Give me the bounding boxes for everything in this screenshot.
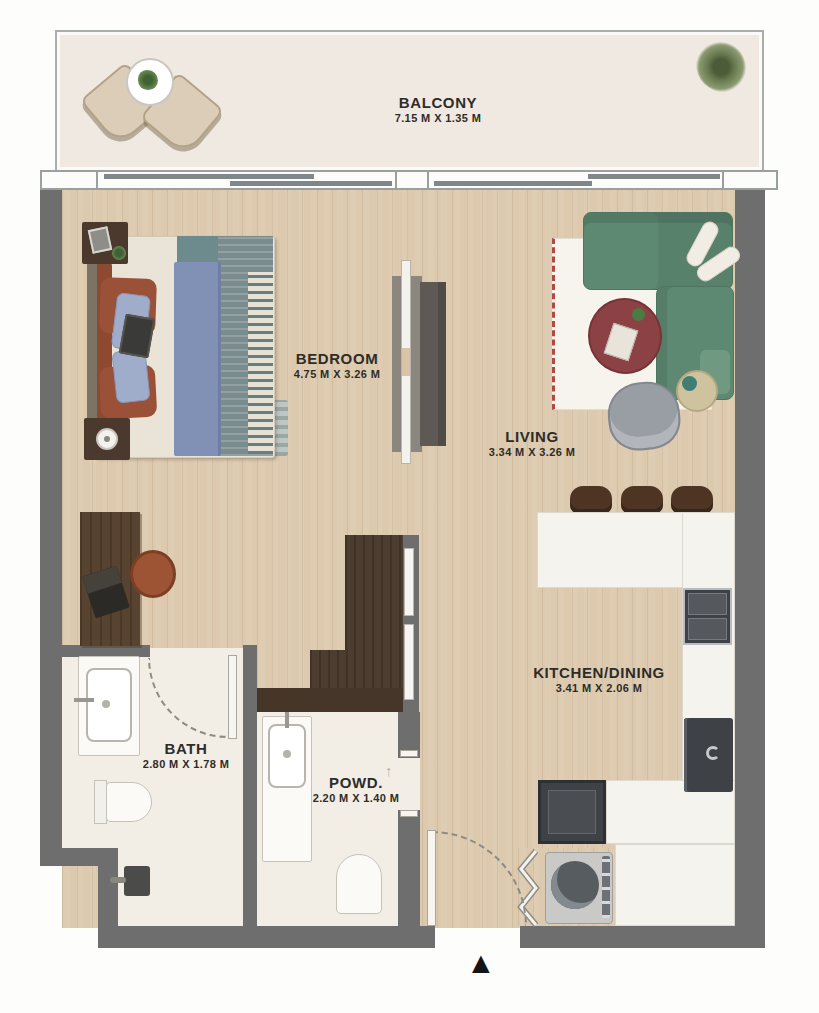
tv-panel-icon bbox=[420, 282, 446, 446]
wall-bottom-left bbox=[118, 926, 435, 948]
room-dims: 4.75 M X 3.26 M bbox=[294, 368, 381, 380]
room-dims: 2.80 M X 1.78 M bbox=[143, 758, 230, 770]
bed-runner-blue bbox=[174, 262, 221, 456]
wall-bath-powder bbox=[243, 645, 257, 926]
powder-door-opening bbox=[398, 758, 420, 810]
nightstand-plant-icon bbox=[112, 246, 126, 260]
room-dims: 3.34 M X 3.26 M bbox=[489, 446, 576, 458]
wall-left bbox=[40, 190, 62, 848]
wardrobe-icon bbox=[345, 535, 403, 712]
shower-control-icon bbox=[124, 866, 150, 896]
room-name: KITCHEN/DINING bbox=[533, 664, 665, 681]
sliding-panel-icon bbox=[434, 181, 592, 186]
closet-sliding-door-icon bbox=[404, 624, 414, 700]
sliding-panel-icon bbox=[230, 181, 392, 186]
bedroom-label: BEDROOM 4.75 M X 3.26 M bbox=[294, 350, 381, 380]
toilet-icon bbox=[106, 782, 152, 822]
entrance-marker-icon: ▲ bbox=[466, 948, 496, 978]
dining-stool-icon bbox=[671, 486, 713, 514]
bath-faucet-icon bbox=[74, 698, 94, 702]
floor-plan: BALCONY 7.15 M X 1.35 M ← → ↑ bbox=[0, 0, 819, 1013]
room-name: POWD. bbox=[313, 774, 400, 791]
room-name: BEDROOM bbox=[294, 350, 381, 367]
powder-drain-icon bbox=[283, 750, 291, 758]
living-label: LIVING 3.34 M X 3.26 M bbox=[489, 428, 576, 458]
entry-door-leaf-icon bbox=[427, 830, 436, 926]
shower-handle-icon bbox=[110, 877, 126, 883]
wall-bottom-right bbox=[520, 926, 735, 948]
room-dims: 3.41 M X 2.06 M bbox=[533, 682, 665, 694]
bath-drain-icon bbox=[102, 700, 110, 708]
cooktop-burner-icon bbox=[688, 618, 727, 640]
dining-stool-icon bbox=[621, 486, 663, 514]
washer-drum-icon bbox=[551, 861, 599, 909]
kitchen-sink-bowl-icon bbox=[548, 790, 596, 834]
wall-right bbox=[735, 190, 765, 948]
kitchen-cabinet bbox=[615, 844, 735, 926]
door-jamb bbox=[400, 810, 418, 817]
room-dims: 2.20 M X 1.40 M bbox=[313, 792, 400, 804]
cooktop-burner-icon bbox=[688, 593, 727, 615]
room-name: BALCONY bbox=[395, 94, 482, 111]
wardrobe-icon bbox=[257, 688, 403, 712]
window-corner-left bbox=[40, 170, 98, 190]
washer-panel-icon bbox=[602, 856, 610, 918]
powder-label: POWD. 2.20 M X 1.40 M bbox=[313, 774, 400, 804]
bath-door-leaf-icon bbox=[228, 655, 237, 739]
desk-chair-icon bbox=[130, 550, 176, 598]
sliding-panel-icon bbox=[104, 174, 314, 179]
lamp-icon-center bbox=[104, 436, 110, 442]
room-dims: 7.15 M X 1.35 M bbox=[395, 112, 482, 124]
window-mullion bbox=[395, 170, 429, 190]
coffee-table-plant-icon bbox=[632, 308, 645, 321]
table-plant-icon bbox=[138, 70, 158, 90]
balcony-label: BALCONY 7.15 M X 1.35 M bbox=[395, 94, 482, 124]
powder-faucet-icon bbox=[285, 712, 289, 728]
closet-sliding-door-icon bbox=[404, 548, 414, 616]
kitchen-label: KITCHEN/DINING 3.41 M X 2.06 M bbox=[533, 664, 665, 694]
room-name: BATH bbox=[143, 740, 230, 757]
wall-step-a bbox=[40, 848, 118, 866]
powder-toilet-icon bbox=[336, 854, 382, 914]
side-table-icon bbox=[676, 370, 718, 412]
window-corner-right bbox=[722, 170, 778, 190]
tv-icon-mid bbox=[402, 348, 410, 376]
sliding-panel-icon bbox=[588, 174, 720, 179]
door-jamb bbox=[400, 750, 418, 757]
side-table-plant-icon bbox=[682, 376, 697, 391]
room-name: LIVING bbox=[489, 428, 576, 445]
wall-powder-right bbox=[398, 712, 420, 926]
bath-label: BATH 2.80 M X 1.78 M bbox=[143, 740, 230, 770]
bed-foot-throw bbox=[248, 272, 273, 454]
dining-stool-icon bbox=[570, 486, 612, 514]
fridge-handle-icon bbox=[706, 746, 720, 760]
